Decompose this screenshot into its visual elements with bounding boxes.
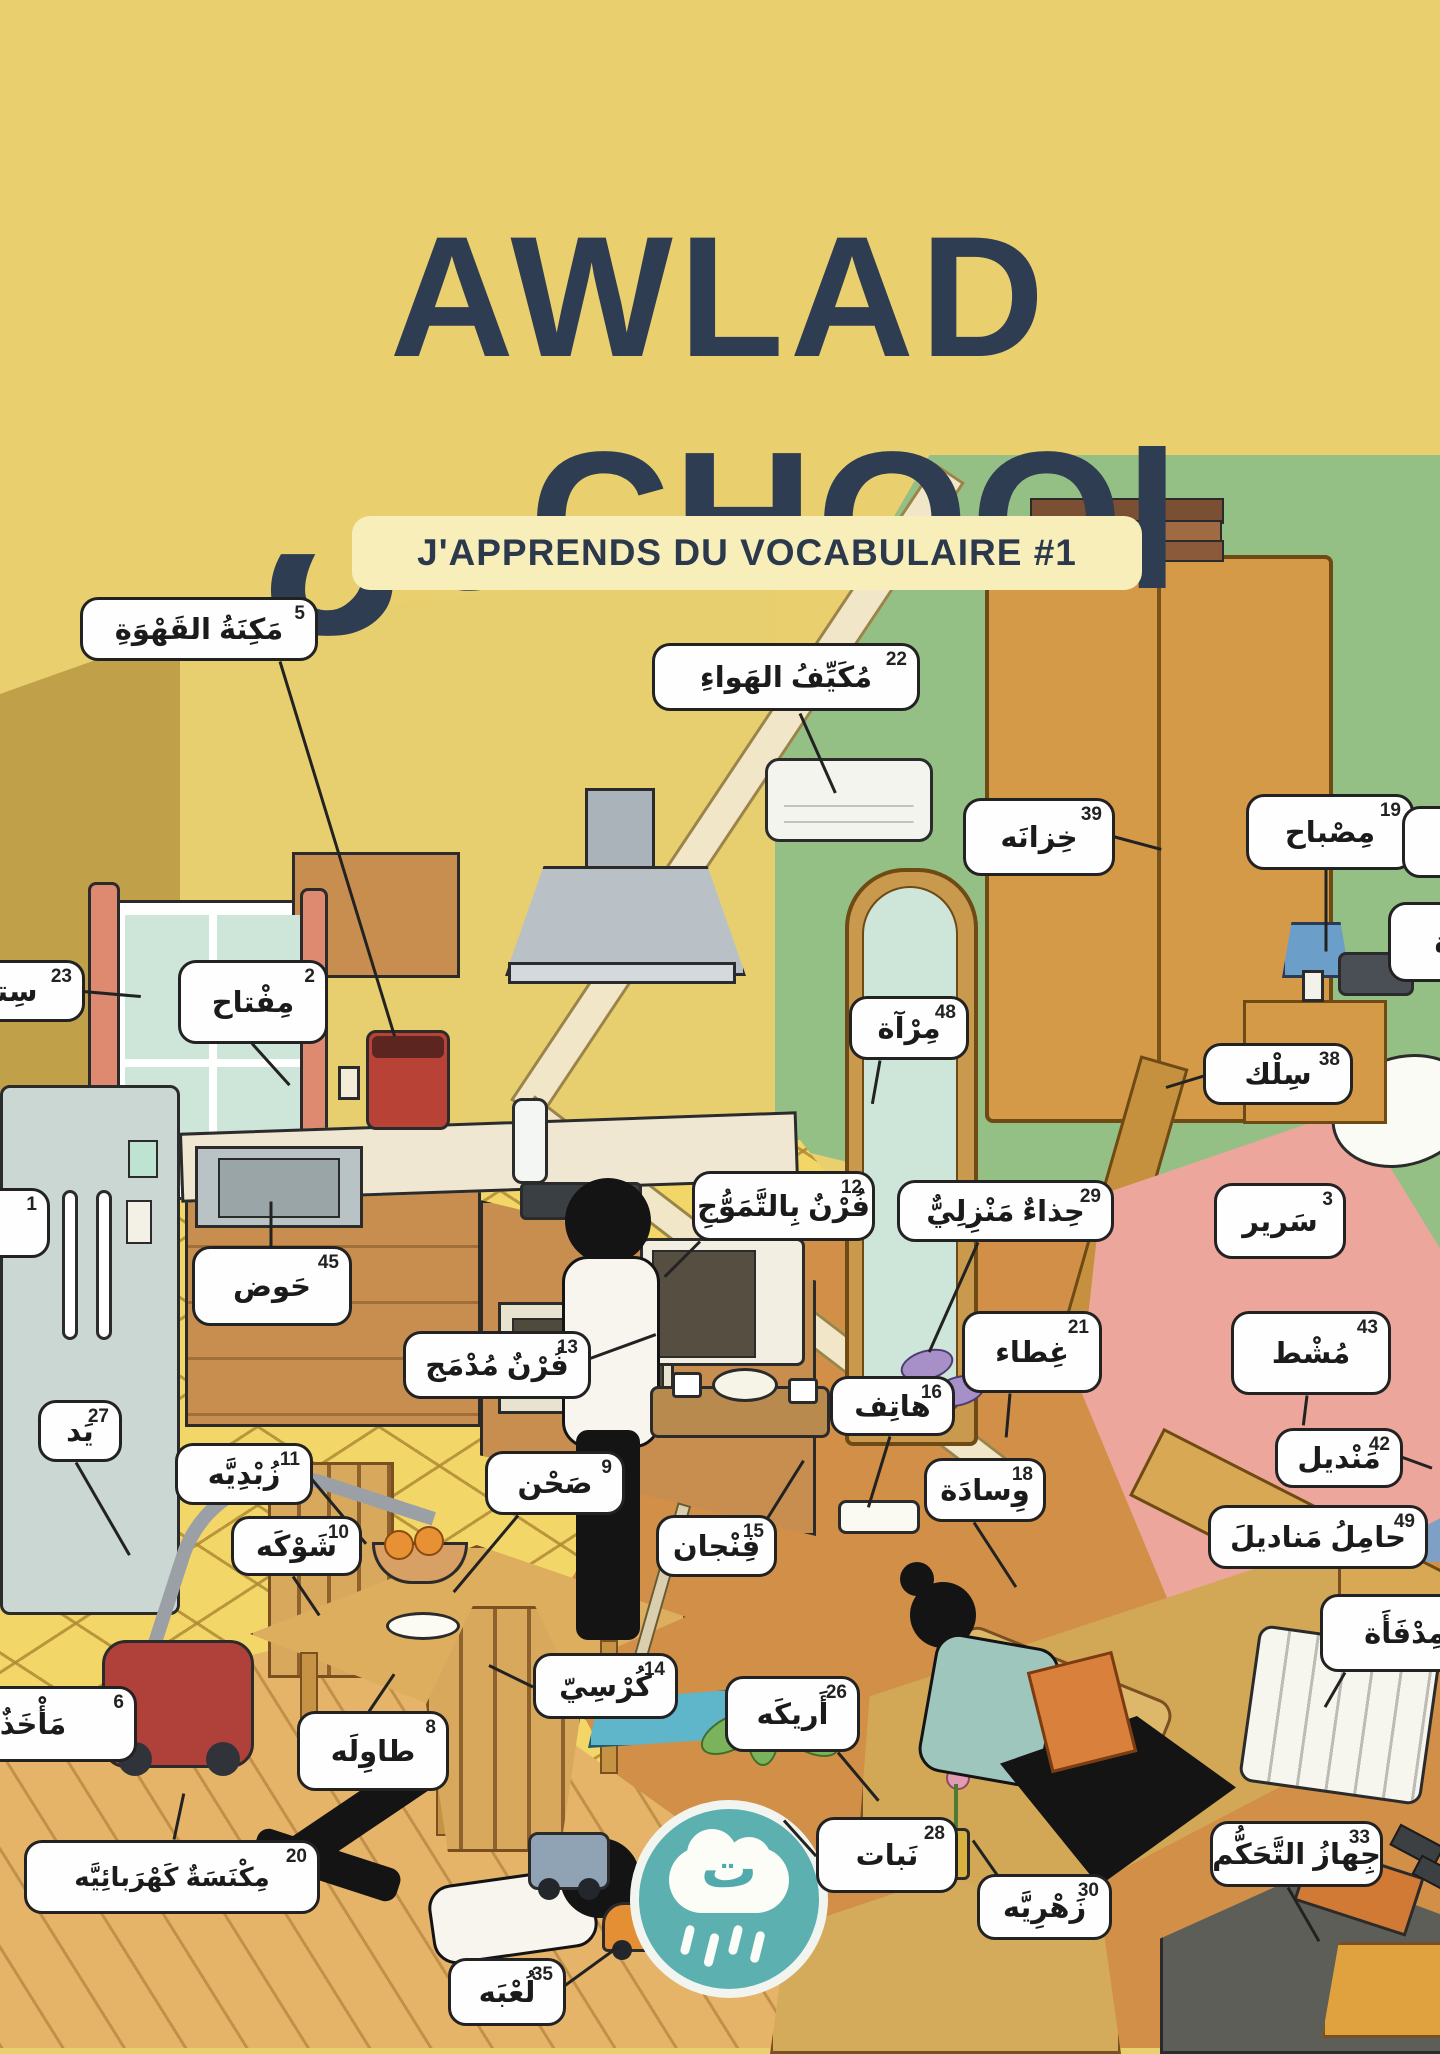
label-number: 14 xyxy=(644,1659,665,1681)
vocab-label-28: 28نَبات xyxy=(816,1817,958,1893)
subtitle-banner: J'APPRENDS DU VOCABULAIRE #1 xyxy=(352,516,1142,590)
sink-basin xyxy=(218,1158,340,1218)
label-number: 10 xyxy=(328,1522,349,1544)
label-number: 8 xyxy=(425,1717,436,1739)
label-arabic-text: ة xyxy=(1424,925,1440,960)
label-number: 33 xyxy=(1349,1827,1370,1849)
table-lamp-base xyxy=(1302,970,1324,1002)
label-arabic-text: سِتارَة xyxy=(0,974,48,1009)
vocab-label-11: 11زُبْدِيَّه xyxy=(175,1443,313,1505)
vocab-label-26: 26أَريكَه xyxy=(725,1676,860,1752)
range-hood-chimney xyxy=(585,788,655,872)
vocab-label-35: 35لُعْبَه xyxy=(448,1958,566,2026)
rain-drop-3 xyxy=(728,1924,744,1955)
label-number: 27 xyxy=(88,1406,109,1428)
vocab-label-partial-8 xyxy=(1402,806,1440,878)
floor-lamp-shade xyxy=(1322,1942,1440,2038)
label-number: 26 xyxy=(826,1682,847,1704)
vocab-label-13: 13فُرْنٌ مُدْمَج xyxy=(403,1331,591,1399)
label-arabic-text: مِصْباح xyxy=(1275,815,1385,850)
vacuum-wheel-2 xyxy=(206,1742,240,1776)
label-arabic-text: نَبات xyxy=(846,1838,929,1873)
vocab-label-22: 22مُكَيِّفُ الهَواءِ xyxy=(652,643,920,711)
label-arabic-text: مِفْتاح xyxy=(202,985,304,1020)
vocab-label-33: 33جِهازُ التَّحَكُّم xyxy=(1210,1821,1383,1887)
vocab-label-9: 9صَحْن xyxy=(485,1451,625,1515)
coffee-machine-top xyxy=(372,1036,444,1058)
vocab-label-15: 15فِنْجان xyxy=(656,1515,777,1577)
label-number: 42 xyxy=(1369,1434,1390,1456)
label-arabic-text: سِلْك xyxy=(1234,1057,1321,1092)
vocab-label-29: 29حِذاءٌ مَنْزِلِيٌّ xyxy=(897,1180,1114,1242)
tray-cup-2 xyxy=(788,1378,818,1404)
poster: { "header": { "title_line1": "AWLAD", "t… xyxy=(0,0,1440,2048)
rain-drop-4 xyxy=(749,1930,765,1963)
air-conditioner xyxy=(765,758,933,842)
label-arabic-text: طاوِلَه xyxy=(321,1734,426,1769)
rain-drop xyxy=(680,1924,696,1955)
label-arabic-text: مُكَيِّفُ الهَواءِ xyxy=(690,660,882,695)
vocab-label-43: 43مُشْط xyxy=(1231,1311,1391,1395)
label-number: 9 xyxy=(601,1457,612,1479)
label-number: 12 xyxy=(841,1177,862,1199)
vocab-label-19: 19مِصْباح xyxy=(1246,794,1414,870)
label-arabic-text: ثَلّاجَة xyxy=(0,1206,3,1241)
light-switch xyxy=(338,1066,360,1100)
power-strip xyxy=(838,1500,920,1534)
label-arabic-text: فُرْنٌ مُدْمَج xyxy=(415,1348,578,1383)
vocab-label-39: 39خِزانَه xyxy=(963,798,1115,876)
label-number: 20 xyxy=(286,1846,307,1868)
label-arabic-text: زُبْدِيَّه xyxy=(198,1457,291,1492)
vocab-label-27: 27يَد xyxy=(38,1400,122,1462)
standing-mirror-glass xyxy=(862,886,958,1410)
label-number: 38 xyxy=(1319,1049,1340,1071)
label-number: 22 xyxy=(886,649,907,671)
fridge-handle-left xyxy=(62,1190,78,1340)
vocab-label-21: 21غِطاء xyxy=(962,1311,1102,1393)
label-number: 19 xyxy=(1380,800,1401,822)
label-number: 6 xyxy=(113,1692,124,1714)
label-number: 15 xyxy=(743,1521,764,1543)
vocab-label-10: 10شَوْكَه xyxy=(231,1516,362,1576)
label-arabic-text: مُشْط xyxy=(1262,1336,1361,1371)
label-number: 45 xyxy=(318,1252,339,1274)
vocab-label-42: 42مَنْديل xyxy=(1275,1428,1403,1488)
vocab-label-2: 2مِفْتاح xyxy=(178,960,328,1044)
vocab-label-partial-27: مِدْفَأَة xyxy=(1320,1594,1440,1672)
label-arabic-text: صَحْن xyxy=(507,1466,602,1501)
vocab-label-30: 30زَهْرِيَّه xyxy=(977,1874,1112,1940)
label-number: 5 xyxy=(294,603,305,625)
label-number: 35 xyxy=(532,1964,553,1986)
label-arabic-text: مِكْنَسَةٌ كَهْرَبائِيَّه xyxy=(64,1862,279,1893)
label-number: 3 xyxy=(1322,1189,1333,1211)
label-arabic-text: مِدْفَأَة xyxy=(1354,1616,1440,1651)
label-arabic-text: سَرير xyxy=(1232,1204,1328,1239)
label-arabic-text: حِذاءٌ مَنْزِلِيٌّ xyxy=(916,1194,1095,1229)
vocab-label-20: 20مِكْنَسَةٌ كَهْرَبائِيَّه xyxy=(24,1840,320,1914)
fridge-handle-right xyxy=(96,1190,112,1340)
page-title: AWLAD xyxy=(0,211,1440,383)
publisher-logo: ت xyxy=(630,1800,828,1998)
vocab-label-45: 45حَوض xyxy=(192,1246,352,1326)
toy-truck-wheel-2 xyxy=(578,1878,600,1900)
label-number: 39 xyxy=(1081,804,1102,826)
label-arabic-text: غِطاء xyxy=(985,1335,1079,1370)
label-number: 30 xyxy=(1078,1880,1099,1902)
label-number: 29 xyxy=(1080,1186,1101,1208)
label-number: 11 xyxy=(280,1449,300,1471)
vocab-label-23: 23سِتارَة xyxy=(0,960,85,1022)
logo-letter: ت xyxy=(639,1835,819,1901)
vocab-label-3: 3سَرير xyxy=(1214,1183,1346,1259)
vocab-label-1: 1ثَلّاجَة xyxy=(0,1188,50,1258)
label-number: 49 xyxy=(1394,1511,1415,1533)
range-hood xyxy=(505,866,746,976)
label-arabic-text: حامِلُ مَناديلَ xyxy=(1220,1520,1416,1555)
vocab-label-49: 49حامِلُ مَناديلَ xyxy=(1208,1505,1428,1569)
range-hood-band xyxy=(508,962,736,984)
label-arabic-text: مَكِنَةُ القَهْوَةِ xyxy=(105,612,293,647)
vocab-label-8: 8طاوِلَه xyxy=(297,1711,449,1791)
label-arabic-text: حَوض xyxy=(223,1269,321,1304)
vocab-label-12: 12فُرْنٌ بِالتَّمَوُّجِ xyxy=(692,1171,875,1241)
label-arabic-text: خِزانَه xyxy=(990,820,1087,855)
subtitle-text: J'APPRENDS DU VOCABULAIRE #1 xyxy=(417,532,1077,574)
vocab-label-48: 48مِرْآة xyxy=(849,996,969,1060)
vocab-label-38: 38سِلْك xyxy=(1203,1043,1353,1105)
label-number: 13 xyxy=(557,1337,578,1359)
label-number: 16 xyxy=(921,1382,942,1404)
water-bottle xyxy=(512,1098,548,1184)
label-number: 2 xyxy=(304,966,315,988)
tray-plate xyxy=(712,1368,778,1402)
rain-drop-2 xyxy=(703,1932,720,1967)
label-number: 1 xyxy=(26,1194,37,1216)
tray-cup xyxy=(672,1372,702,1398)
vocab-label-18: 18وِسادَة xyxy=(924,1458,1046,1522)
label-number: 28 xyxy=(924,1823,945,1845)
label-arabic-text: مَأْخَذٌ كَهْـ xyxy=(0,1707,76,1742)
label-number: 18 xyxy=(1012,1464,1033,1486)
kitchen-person-head xyxy=(565,1178,651,1264)
label-arabic-text: أَريكَه xyxy=(747,1697,839,1732)
label-number: 48 xyxy=(935,1002,956,1024)
label-number: 43 xyxy=(1357,1317,1378,1339)
toy-truck-wheel xyxy=(538,1878,560,1900)
microwave-door xyxy=(652,1250,756,1358)
label-number: 21 xyxy=(1068,1317,1089,1339)
vocab-label-partial-9: ة xyxy=(1388,902,1440,982)
vocab-label-5: 5مَكِنَةُ القَهْوَةِ xyxy=(80,597,318,661)
vocab-label-16: 16هاتِف xyxy=(830,1376,955,1436)
vocab-label-14: 14كُرْسِيّ xyxy=(533,1653,678,1719)
vocab-label-6: 6مَأْخَذٌ كَهْـ xyxy=(0,1686,137,1762)
label-number: 23 xyxy=(51,966,72,988)
fridge-magnet-2 xyxy=(126,1200,152,1244)
fridge-magnet xyxy=(128,1140,158,1178)
